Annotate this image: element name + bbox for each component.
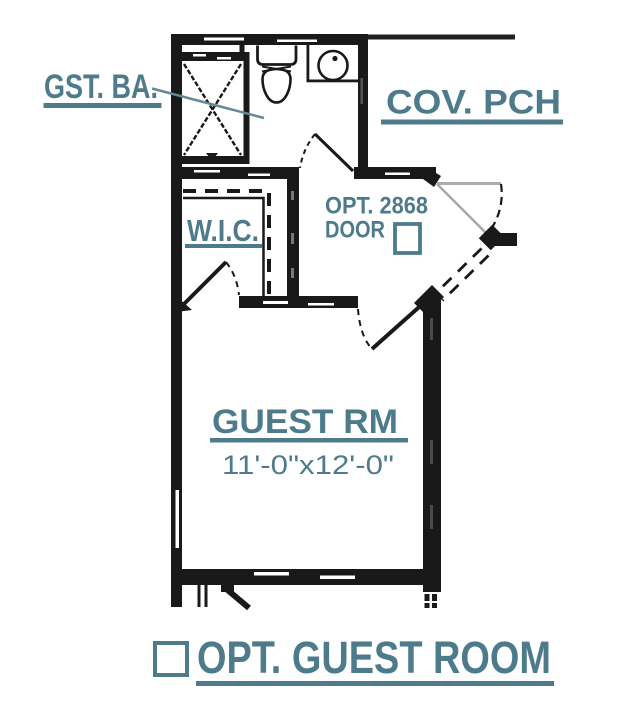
svg-text:W.I.C.: W.I.C. (187, 213, 259, 248)
svg-text:OPT. 2868: OPT. 2868 (325, 193, 428, 220)
svg-text:GST. BA.: GST. BA. (44, 68, 158, 106)
svg-text:11'-0"x12'-0": 11'-0"x12'-0" (222, 450, 394, 480)
svg-text:GUEST RM: GUEST RM (212, 403, 398, 441)
svg-text:DOOR: DOOR (325, 217, 385, 244)
svg-text:OPT. GUEST ROOM: OPT. GUEST ROOM (197, 632, 551, 683)
svg-text:COV. PCH: COV. PCH (386, 84, 561, 122)
